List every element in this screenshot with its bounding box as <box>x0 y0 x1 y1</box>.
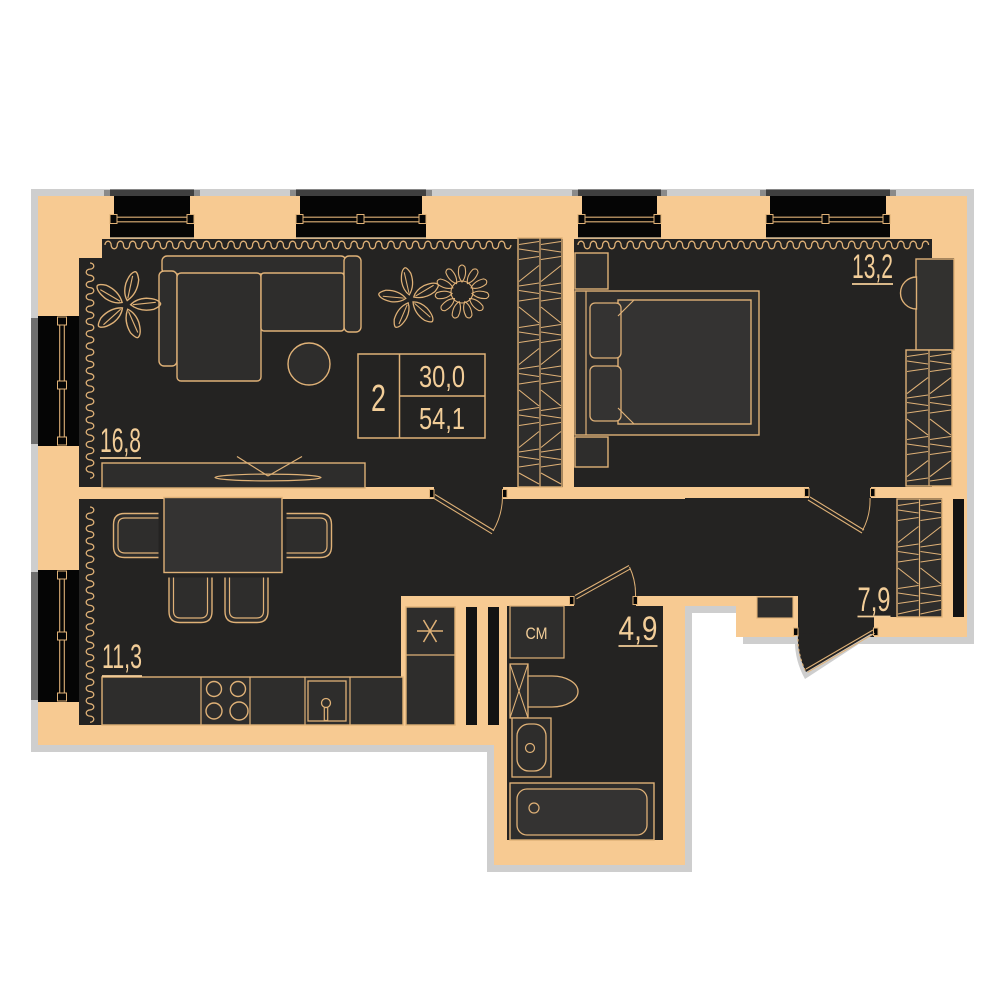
svg-text:16,8: 16,8 <box>100 422 141 460</box>
svg-text:11,3: 11,3 <box>102 638 142 676</box>
svg-text:2: 2 <box>371 378 386 420</box>
svg-text:4,9: 4,9 <box>619 610 658 648</box>
svg-text:СМ: СМ <box>526 625 548 643</box>
svg-text:30,0: 30,0 <box>419 359 465 394</box>
svg-text:7,9: 7,9 <box>858 581 891 619</box>
svg-text:54,1: 54,1 <box>419 401 465 436</box>
svg-text:13,2: 13,2 <box>852 248 893 286</box>
